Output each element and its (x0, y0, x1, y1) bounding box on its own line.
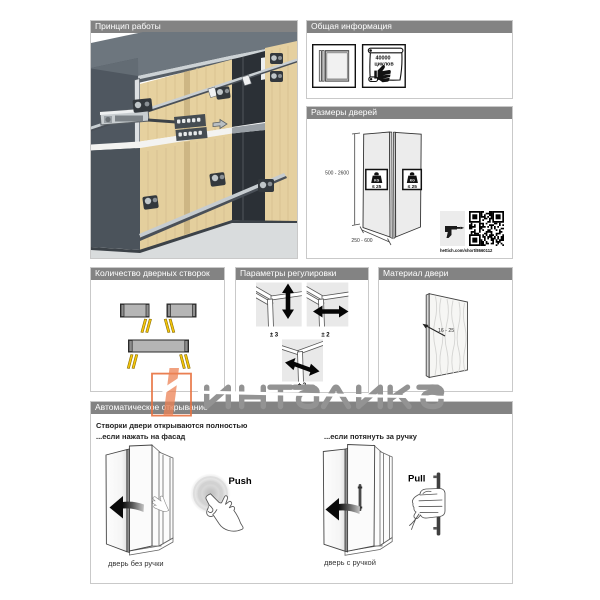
svg-text:16 - 25: 16 - 25 (438, 328, 454, 334)
svg-text:± 3: ± 3 (270, 333, 279, 339)
svg-text:Push: Push (229, 476, 252, 487)
svg-text:hettich.com/short/8660112: hettich.com/short/8660112 (440, 248, 493, 253)
svg-text:≤ 25: ≤ 25 (408, 184, 418, 190)
svg-text:250 - 600: 250 - 600 (351, 238, 372, 244)
svg-text:40000: 40000 (376, 55, 391, 61)
svg-text:± 2: ± 2 (321, 333, 330, 339)
svg-text:KG: KG (410, 179, 415, 183)
svg-text:500 - 2600: 500 - 2600 (325, 171, 349, 177)
svg-text:≤ 25: ≤ 25 (372, 184, 382, 190)
svg-text:Pull: Pull (408, 474, 425, 485)
svg-text:KG: KG (374, 179, 379, 183)
